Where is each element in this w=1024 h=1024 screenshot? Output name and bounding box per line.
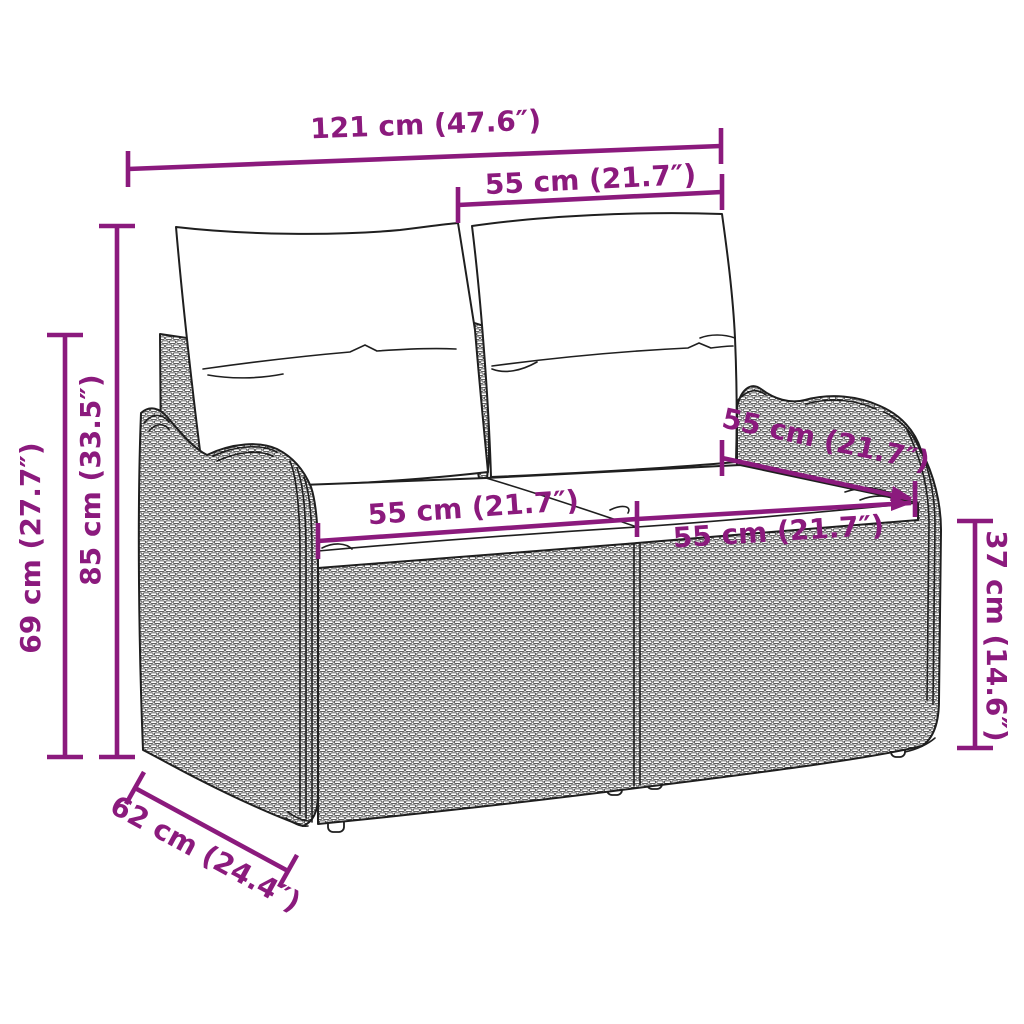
dimension-total-width-label: 121 cm (47.6″) (310, 104, 542, 146)
dimension-side-height-label: 69 cm (27.7″) (14, 442, 47, 653)
dimension-total-height: 85 cm (33.5″) (74, 226, 135, 757)
dimension-seat-height-label: 37 cm (14.6″) (980, 530, 1013, 741)
dimension-side-height: 69 cm (27.7″) (14, 335, 83, 757)
back-cushion-right (472, 213, 737, 477)
dimension-total-height-label: 85 cm (33.5″) (74, 374, 107, 585)
back-cushion-right-outline (472, 213, 737, 477)
left-armrest (139, 408, 318, 826)
dimension-seat-height: 37 cm (14.6″) (957, 521, 1013, 748)
left-armrest-outline (139, 408, 318, 826)
product-dimension-diagram: 121 cm (47.6″) 55 cm (21.7″) 85 cm (33.5… (0, 0, 1024, 1024)
